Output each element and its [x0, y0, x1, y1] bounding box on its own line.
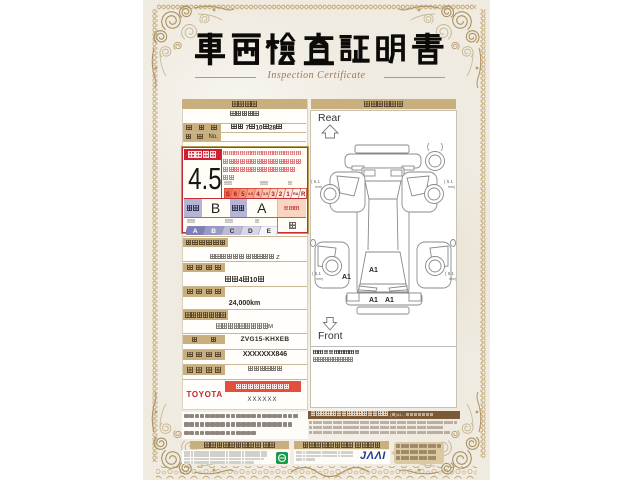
svg-text:E: E — [267, 228, 272, 235]
svg-text:mm): mm) — [448, 185, 455, 189]
svg-text:D: D — [248, 228, 253, 235]
svg-text:( 5.1: ( 5.1 — [444, 179, 454, 184]
svg-text:( 5.1: ( 5.1 — [445, 271, 455, 276]
svg-text:4.5: 4.5 — [248, 191, 253, 195]
svg-text:A: A — [193, 228, 198, 235]
svg-text:B: B — [211, 228, 216, 235]
svg-text:A1: A1 — [342, 274, 351, 281]
svg-text:A1: A1 — [369, 267, 378, 274]
svg-text:mm): mm) — [449, 277, 456, 281]
svg-text:A1: A1 — [369, 297, 378, 304]
svg-text:( 5.1: ( 5.1 — [312, 271, 322, 276]
svg-text:R: R — [301, 191, 306, 197]
svg-text:( 5.1: ( 5.1 — [311, 179, 321, 184]
svg-text:3.5: 3.5 — [263, 191, 268, 195]
svg-text:S: S — [226, 191, 230, 197]
svg-text:RA: RA — [293, 191, 299, 195]
svg-text:A1: A1 — [385, 297, 394, 304]
svg-text:C: C — [230, 228, 235, 235]
svg-text:mm): mm) — [316, 277, 323, 281]
svg-text:mm): mm) — [315, 185, 322, 189]
